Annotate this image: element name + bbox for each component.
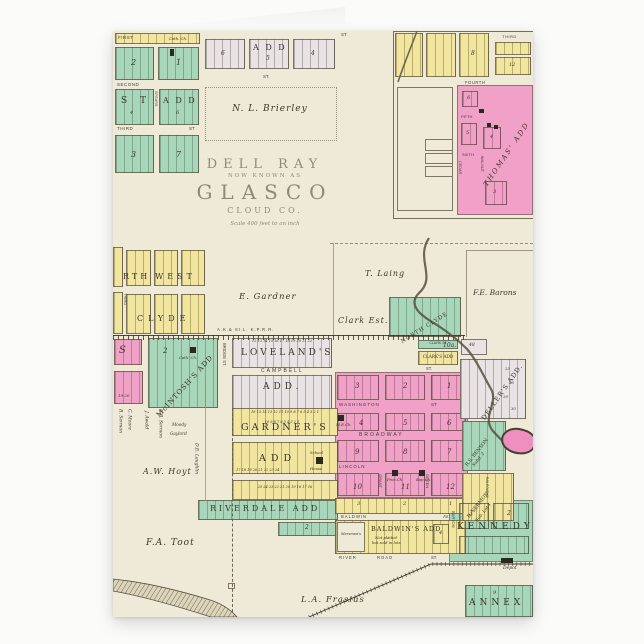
block-number: 3 <box>493 190 496 195</box>
street-third: THIRD <box>117 127 133 132</box>
block-number: 5 <box>266 56 270 62</box>
map-block <box>115 89 154 125</box>
map-block <box>114 371 143 404</box>
map-scale-note: Scale 400 feet to an inch <box>175 222 355 228</box>
block-number: 6 <box>467 96 470 101</box>
cath-church-label: Cath. Ch. <box>169 37 187 41</box>
block-number: 5 <box>466 131 469 136</box>
block-number: 2 <box>131 59 136 67</box>
mcintosh-add-area <box>148 338 218 408</box>
owner-gaylord: Gaylord <box>170 432 187 436</box>
map-block <box>159 89 199 125</box>
street-broadway: BROADWAY <box>359 433 404 438</box>
street-st: ST <box>431 403 437 408</box>
block-number: 9 <box>493 591 496 596</box>
street-clark: CLARK ST <box>418 342 458 346</box>
street-st-dot: ST. <box>263 75 270 80</box>
block-number: 4 <box>439 531 442 536</box>
owner-clark-est: Clark Est. <box>338 317 388 325</box>
street-spears: SPEARS <box>153 91 157 121</box>
block-number: 1 <box>449 502 452 507</box>
owner-la-frasius: L.A. Frasius <box>301 596 365 605</box>
block-number: 1 <box>176 59 181 67</box>
owner-de-laughlin: D.E. Laughlin <box>193 443 198 499</box>
map-block <box>205 39 245 69</box>
lot-number: 26 <box>509 381 514 385</box>
addition-clyde: CLYDE <box>137 315 190 323</box>
building-marker <box>479 109 484 113</box>
block-number: 11 <box>401 484 410 491</box>
map-title-now-known-as: NOW KNOWN AS <box>175 174 355 180</box>
greeting-card-front[interactable]: FIRST Cath. Ch. 2 1 SECOND S T 4 SPEARS … <box>113 31 533 617</box>
block-number: 10 <box>353 484 362 491</box>
street-campbell: CAMPBELL <box>261 369 304 374</box>
owner-j-awald: J. Awald <box>143 411 148 453</box>
building-marker <box>170 49 174 56</box>
section-line <box>330 243 533 244</box>
street-st-dot: ST. <box>431 556 437 560</box>
school-marker <box>316 457 323 464</box>
depot-label: Depot <box>503 567 517 572</box>
street-second: SECOND <box>117 83 139 88</box>
block-number: 2 <box>507 511 511 517</box>
block-number: 8 <box>471 51 475 57</box>
block-number: 2 <box>403 502 406 507</box>
street-walnut: WALNUT <box>479 156 483 201</box>
parcel-line <box>466 250 533 251</box>
street-st: ST <box>189 127 195 132</box>
inset-border <box>393 31 533 219</box>
parcel-line <box>205 377 206 501</box>
street-sixth: SIXTH <box>462 153 474 157</box>
map-title-county: CLOUD CO. <box>175 207 355 215</box>
addition-gardner-add: ADD <box>259 454 296 464</box>
parcel-line <box>333 243 334 337</box>
lot-number-row: 12 13 14 15 16 17 18 19 20 21 22 <box>233 340 331 344</box>
building-marker <box>487 123 491 127</box>
parcel-line <box>466 250 467 337</box>
street-road: ROAD <box>377 556 393 560</box>
addition-st-add: A D D <box>163 97 197 105</box>
addition-west: WEST <box>155 273 196 281</box>
map-title-glasco: GLASCO <box>175 182 355 202</box>
block-number: 3 <box>131 151 136 159</box>
street-baldwin: BALDWIN <box>341 515 367 519</box>
owner-t-laing: T. Laing <box>365 270 405 278</box>
block-number: 8 <box>403 449 407 456</box>
pond <box>502 429 533 454</box>
railroad-label: A.K.& St.L. K.P.R.R. <box>217 328 274 332</box>
addition-clarks: CLARK'S ADD <box>418 355 458 359</box>
card-mockup-scene: FIRST Cath. Ch. 2 1 SECOND S T 4 SPEARS … <box>0 0 644 644</box>
owner-aw-hoyt: A.W. Hoyt <box>143 468 192 476</box>
lot-number-row: 16 15 14 13 12 11 10 9 8 7 6 5 4 3 2 1 <box>233 411 337 415</box>
map-block <box>337 522 365 552</box>
owner-c-moore: C. Moore <box>126 409 131 451</box>
lot-number: 29 <box>503 395 508 399</box>
street-cedar: CEDAR <box>457 161 461 201</box>
block-number: 3 <box>355 383 359 390</box>
cath-church-label: Cath. Ch. <box>179 356 197 360</box>
addition-annex: ANNEX <box>469 599 524 608</box>
lot-number: 23 <box>505 367 510 371</box>
block-number: 9 <box>355 449 359 456</box>
owner-mersmans: Mersman's <box>337 533 365 537</box>
street-av: AV. <box>443 515 449 519</box>
street-barton: BARTON <box>451 511 455 551</box>
block-number: 3 <box>469 511 473 517</box>
lot-numbers: 19 20 <box>118 394 129 398</box>
addition-loveland-add: ADD. <box>263 383 302 392</box>
school-label-1: School <box>310 451 323 455</box>
block-number: 6 <box>221 51 225 57</box>
map-title-dell-ray: DELL RAY <box>175 158 355 171</box>
street-st-top: ST <box>341 33 347 38</box>
map-block <box>113 247 123 287</box>
pres-church-label: Pres.Ch. <box>387 478 403 482</box>
lot-number-row: 25 24 23 22 21 20 19 18 17 16 <box>233 486 337 490</box>
me-church-label: M.E.Ch. <box>336 423 352 427</box>
owner-fa-toot: F.A. Toot <box>146 539 195 548</box>
map-block <box>113 292 123 334</box>
street-fourth: FOURTH <box>465 81 485 85</box>
block-number: 5 <box>403 420 407 427</box>
card-back-flap <box>113 7 345 32</box>
street-grant: GRANT <box>378 474 382 496</box>
river <box>113 579 237 617</box>
block-number: 48 <box>469 344 475 349</box>
block-number: 4 <box>130 111 133 116</box>
block-number: 2 <box>305 525 309 531</box>
block-number: 2 <box>403 383 407 390</box>
church-marker <box>392 470 398 476</box>
street-bridge: BRIDGE ST. <box>222 343 226 395</box>
street-railroad-av: RAILROAD AV <box>485 477 488 507</box>
block-number: 6 <box>447 420 451 427</box>
addition-north-fragment: RTH <box>123 273 150 281</box>
addition-letter: S <box>119 346 126 356</box>
street-lincoln: LINCOLN <box>339 465 366 470</box>
block-number: 2 <box>163 348 167 355</box>
owner-brierley: N. L. Brierley <box>205 105 335 114</box>
map-block <box>459 536 529 554</box>
church-marker <box>338 415 344 421</box>
school-label-2: House <box>310 467 322 471</box>
street-washington: WASHINGTON <box>339 403 380 408</box>
block-number: 4 <box>311 51 315 57</box>
depot-marker <box>501 558 513 563</box>
parcel-outline <box>205 87 337 141</box>
block-number: 7 <box>447 449 451 456</box>
lot-number-row: 17 18 19 20 21 22 23 24 <box>236 469 279 473</box>
addition-baldwins: BALDWIN'S ADD <box>371 526 441 533</box>
addition-kennedy: KENNEDY <box>457 523 533 532</box>
owner-fe-barons: F.E. Barons <box>473 289 516 297</box>
church-marker <box>190 347 196 353</box>
street-green: GREEN <box>425 474 429 496</box>
street-third-vertical: THIRD <box>123 293 127 327</box>
addition-gardner: GARDNER'S <box>241 423 329 433</box>
street-river: RIVER <box>339 556 357 560</box>
owner-moody: Moody <box>172 423 186 427</box>
block-number: 4 <box>359 420 363 427</box>
block-number: 1 <box>447 383 451 390</box>
block-number: 3 <box>357 502 360 507</box>
block-number: 6 <box>176 111 179 116</box>
map-block <box>335 498 466 514</box>
street-fifth: FIFTH <box>461 115 472 119</box>
street-third-inset: THIRD <box>502 35 517 39</box>
owner-r-sermon: R. Sermon <box>117 409 122 451</box>
addition-loveland: LOVELAND'S <box>241 349 333 358</box>
block-number: 12 <box>446 484 455 491</box>
baldwins-note-2: but sold in lots <box>372 541 401 545</box>
street-st-dot: ST. <box>426 367 432 371</box>
lot-number: 30 <box>511 407 516 411</box>
block-number: 4 <box>490 135 493 140</box>
addition-top-add: A D D <box>253 44 287 52</box>
addition-riverdale: RIVERDALE ADD <box>210 505 320 513</box>
building-marker <box>494 125 498 129</box>
block-number: 12 <box>509 63 515 68</box>
street-first: FIRST <box>118 36 134 41</box>
map-block <box>232 480 338 500</box>
owner-e-gardner: E. Gardner <box>239 293 297 302</box>
addition-st: S T <box>121 97 151 106</box>
